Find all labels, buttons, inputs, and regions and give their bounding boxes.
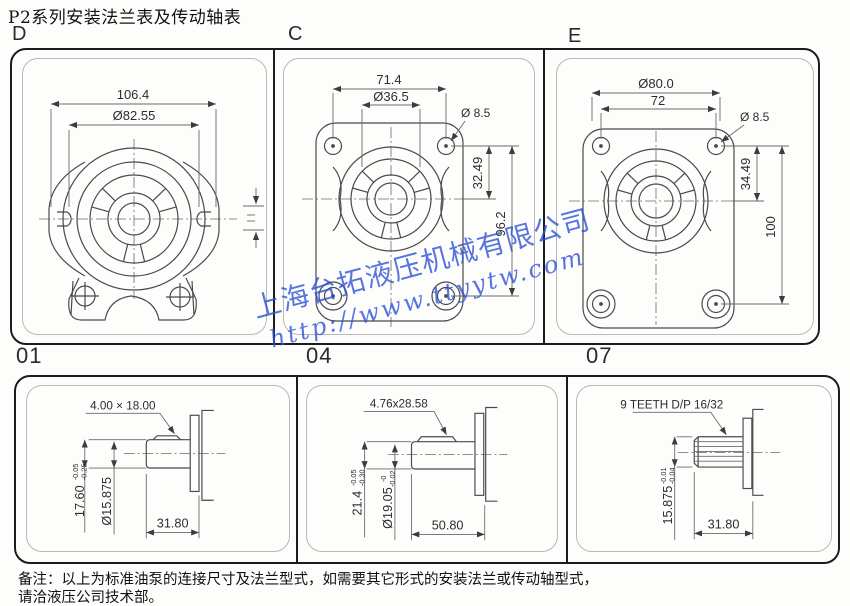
shaft-07-drawing: 9 TEETH D/P 16/32 15.875 -0.01 -0.04 31.… (577, 386, 831, 551)
dim-label-offset-group: 32.49 (470, 157, 485, 190)
section-label-d: D (12, 23, 27, 46)
spline-teeth-lines (694, 442, 743, 462)
section-label-04: 04 (306, 343, 332, 369)
shaft-04-drawing: 4.76x28.58 21.4 -0.05 -0.30 Ø19.05 -0 -0… (307, 386, 557, 551)
dim-label-width: 72 (651, 93, 665, 108)
shaft-table-box: 4.00 × 18.00 17.60 -0.05 -0.25 Ø15.875 3… (14, 375, 840, 564)
dia-tol-bottom: -0.04 (668, 467, 677, 484)
flange-divider-2 (543, 50, 545, 343)
extension-lines (592, 97, 789, 304)
shaft-divider-2 (566, 377, 568, 562)
dim-label-offset: 32.49 (470, 157, 485, 190)
dia-tol-top: -0.01 (659, 467, 668, 484)
flange-c-drawing: 71.4 Ø36.5 Ø 8.5 32.49 96.2 (284, 59, 534, 334)
dim-label-bolt-circle: Ø82.55 (113, 108, 156, 123)
flat-tol-bottom: -0.25 (80, 464, 89, 481)
flat-tol-top: -0.05 (349, 469, 358, 486)
flat-tol-top: -0.05 (71, 464, 80, 481)
length-label: 50.80 (432, 519, 464, 533)
flange-outline (583, 129, 734, 328)
shaft-01-drawing: 4.00 × 18.00 17.60 -0.05 -0.25 Ø15.875 3… (27, 386, 289, 551)
centerlines (302, 127, 476, 327)
flange-panel-c: 71.4 Ø36.5 Ø 8.5 32.49 96.2 (283, 58, 535, 335)
page-title: P2系列安装法兰表及传动轴表 (8, 3, 241, 28)
section-label-01: 01 (16, 343, 42, 369)
dim-label-width: 71.4 (376, 72, 401, 87)
drawing-sheet: P2系列安装法兰表及传动轴表 D C E (0, 0, 850, 606)
dim-label-height: 96.2 (493, 211, 508, 236)
flange-panel-d: 106.4 Ø82.55 (22, 58, 267, 335)
dim-label-height-group: 96.2 (493, 211, 508, 236)
flange-panel-e: Ø80.0 72 Ø 8.5 34.49 100 (556, 58, 814, 335)
flange-d-drawing: 106.4 Ø82.55 (23, 59, 266, 334)
section-label-e: E (568, 25, 582, 48)
flat-height-label-group: 21.4 -0.05 -0.30 (349, 469, 367, 515)
flat-height-label-group: 17.60 -0.05 -0.25 (71, 464, 89, 518)
diameter-label: 15.875 (661, 486, 675, 525)
diameter-label: Ø19.05 (381, 487, 395, 529)
dim-label-height-group: 100 (763, 216, 778, 238)
flat-height-label: 21.4 (351, 491, 365, 516)
shaft-panel-07: 9 TEETH D/P 16/32 15.875 -0.01 -0.04 31.… (576, 385, 832, 552)
shaft-panel-04: 4.76x28.58 21.4 -0.05 -0.30 Ø19.05 -0 -0… (306, 385, 558, 552)
section-label-07: 07 (586, 343, 612, 369)
diameter-label: Ø15.875 (100, 477, 114, 526)
dim-label-offset-group: 34.49 (738, 158, 753, 191)
shaft-panel-01: 4.00 × 18.00 17.60 -0.05 -0.25 Ø15.875 3… (26, 385, 290, 552)
flange-table-box: 106.4 Ø82.55 (10, 48, 820, 345)
dim-label-pilot: Ø36.5 (373, 89, 408, 104)
diameter-label-group: Ø15.875 (100, 477, 114, 526)
flat-tol-bottom: -0.30 (358, 469, 367, 486)
shaft-outline (146, 410, 213, 500)
key-size-label: 4.00 × 18.00 (90, 399, 156, 412)
dim-label-offset: 34.49 (738, 158, 753, 191)
dimension-lines (592, 93, 782, 304)
dim-label-bolt-circle: Ø80.0 (638, 76, 673, 91)
dim-label-width: 106.4 (117, 87, 150, 102)
flange-divider-1 (273, 50, 275, 343)
note-line-2: 请洽液压公司技术部。 (18, 586, 163, 606)
side-stub-view (243, 188, 264, 248)
dimension-lines (675, 412, 753, 533)
spline-label: 9 TEETH D/P 16/32 (620, 398, 723, 411)
extension-lines (51, 109, 216, 207)
length-label: 31.80 (708, 518, 740, 532)
length-label: 31.80 (157, 517, 189, 531)
dim-label-hole: Ø 8.5 (461, 106, 491, 120)
dim-label-height: 100 (763, 216, 778, 238)
diameter-label-group: Ø19.05 -0 -0.02 (379, 470, 397, 528)
dia-tol-bottom: -0.02 (388, 470, 397, 487)
key-size-label: 4.76x28.58 (370, 397, 428, 410)
dim-label-hole: Ø 8.5 (740, 110, 770, 124)
flat-height-label: 17.60 (73, 485, 87, 517)
shaft-divider-1 (296, 377, 298, 562)
diameter-label-group: 15.875 -0.01 -0.04 (659, 467, 677, 524)
bolt-holes (319, 138, 460, 311)
flange-e-drawing: Ø80.0 72 Ø 8.5 34.49 100 (557, 59, 813, 334)
section-label-c: C (288, 23, 303, 46)
dia-tol-top: -0 (379, 475, 388, 482)
centerlines (569, 131, 747, 325)
dimension-lines (333, 89, 512, 296)
